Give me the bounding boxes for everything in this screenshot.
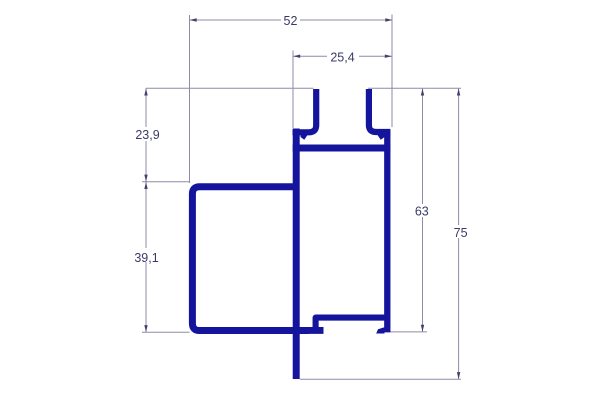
- svg-text:39,1: 39,1: [134, 251, 158, 265]
- svg-text:25,4: 25,4: [330, 50, 354, 64]
- svg-text:75: 75: [454, 226, 468, 240]
- svg-text:63: 63: [415, 205, 429, 219]
- svg-text:52: 52: [284, 14, 298, 28]
- svg-text:23,9: 23,9: [135, 128, 159, 142]
